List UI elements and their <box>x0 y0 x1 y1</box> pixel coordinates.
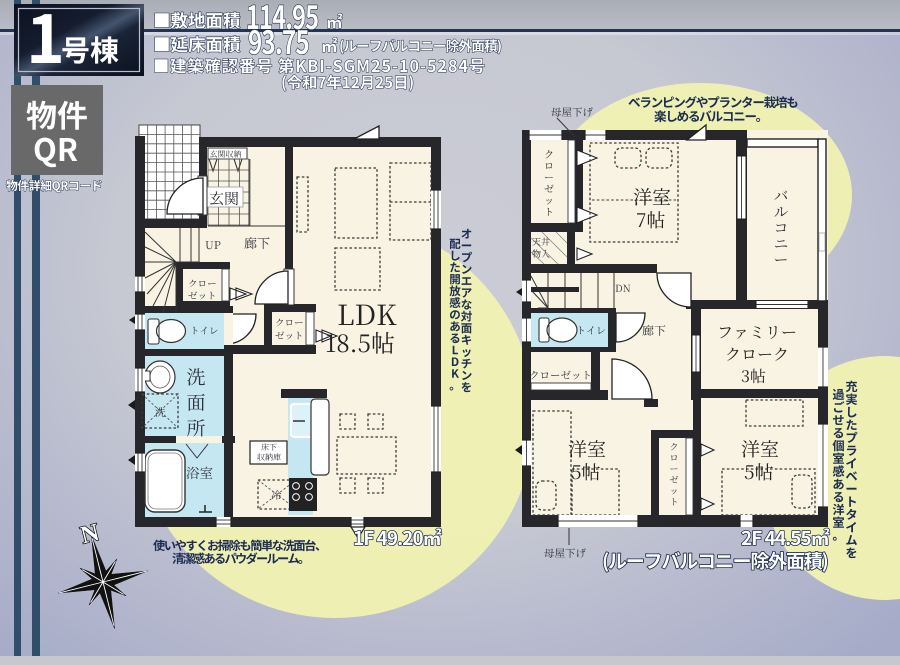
svg-text:N: N <box>78 519 102 550</box>
